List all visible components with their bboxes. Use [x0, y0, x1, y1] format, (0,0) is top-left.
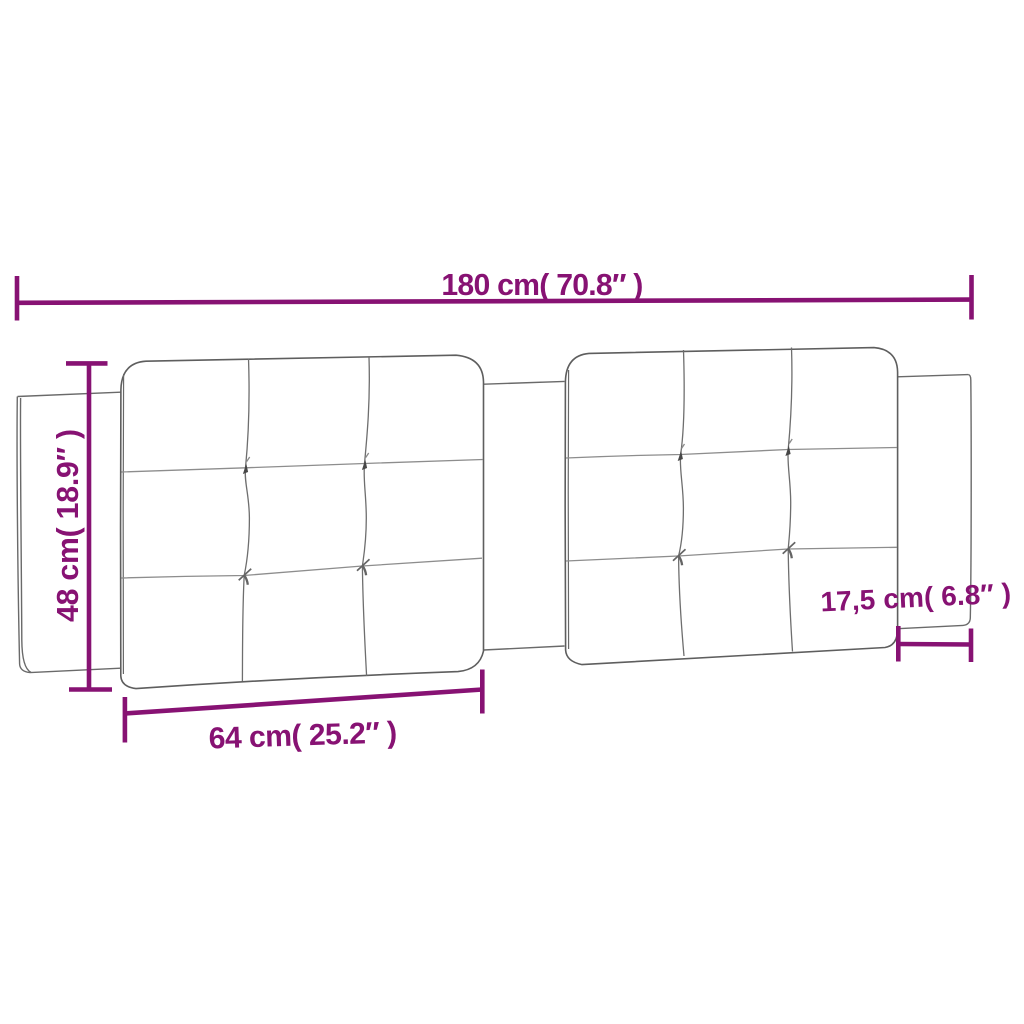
svg-text:64 cm( 25.2″ ): 64 cm( 25.2″ )	[208, 716, 397, 755]
svg-text:48 cm( 18.9″ ): 48 cm( 18.9″ )	[52, 429, 85, 622]
svg-text:180 cm( 70.8″ ): 180 cm( 70.8″ )	[441, 269, 642, 302]
